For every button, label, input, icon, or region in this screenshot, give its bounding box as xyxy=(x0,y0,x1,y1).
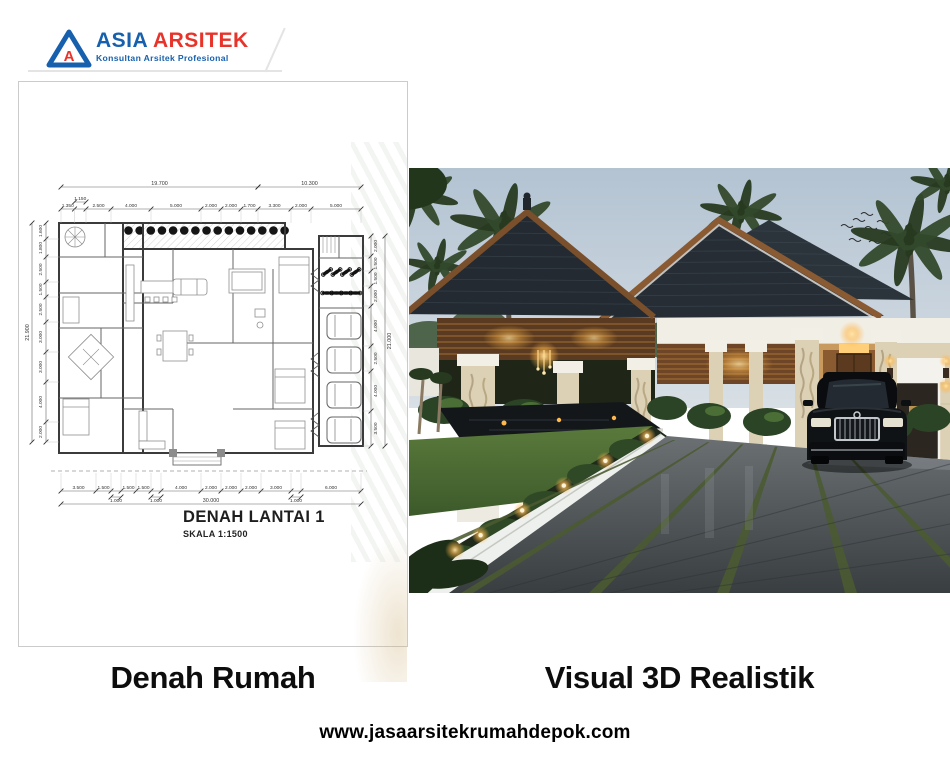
furniture xyxy=(63,227,335,449)
brand-tagline: Konsultan Arsitek Profesional xyxy=(96,53,249,63)
svg-text:1.500: 1.500 xyxy=(122,485,134,491)
svg-text:2.500: 2.500 xyxy=(92,203,104,209)
svg-text:2.000: 2.000 xyxy=(245,485,257,491)
svg-text:2.000: 2.000 xyxy=(38,426,44,438)
svg-text:2.500: 2.500 xyxy=(38,303,44,315)
svg-text:2.500: 2.500 xyxy=(38,263,44,275)
svg-text:30.000: 30.000 xyxy=(203,498,220,504)
interior-walls xyxy=(59,223,363,453)
caption-floorplan: Denah Rumah xyxy=(18,660,408,696)
svg-text:4.000: 4.000 xyxy=(125,203,137,209)
svg-text:2.000: 2.000 xyxy=(373,240,379,252)
porch-chandelier-glow xyxy=(839,321,865,347)
gazebo-finial xyxy=(523,198,531,210)
svg-text:1.700: 1.700 xyxy=(243,203,255,209)
svg-text:10.300: 10.300 xyxy=(301,181,318,187)
svg-text:3.000: 3.000 xyxy=(38,361,44,373)
svg-text:3.500: 3.500 xyxy=(373,422,379,434)
svg-text:2.000: 2.000 xyxy=(295,203,307,209)
svg-text:4.000: 4.000 xyxy=(175,485,187,491)
svg-text:1.000: 1.000 xyxy=(290,498,302,504)
svg-text:3.000: 3.000 xyxy=(270,485,282,491)
svg-text:1.800: 1.800 xyxy=(38,242,44,254)
svg-text:1.000: 1.000 xyxy=(150,498,162,504)
svg-text:2.000: 2.000 xyxy=(225,203,237,209)
website-url: www.jasaarsitekrumahdepok.com xyxy=(0,722,950,744)
svg-text:1.500: 1.500 xyxy=(373,257,379,269)
luxury-car xyxy=(802,372,912,473)
plan-scale-label: SKALA 1:1500 xyxy=(183,529,248,539)
svg-text:19.700: 19.700 xyxy=(151,181,168,187)
svg-text:3.300: 3.300 xyxy=(268,203,280,209)
svg-text:3.500: 3.500 xyxy=(72,485,84,491)
brand-name-primary: ASIA xyxy=(96,29,147,52)
svg-text:1.000: 1.000 xyxy=(110,498,122,504)
svg-text:1.150: 1.150 xyxy=(74,196,86,202)
svg-text:2.500: 2.500 xyxy=(373,352,379,364)
svg-text:21.000: 21.000 xyxy=(387,333,393,350)
svg-text:4.000: 4.000 xyxy=(38,396,44,408)
garage-cars xyxy=(327,313,361,443)
window-frame xyxy=(889,358,945,382)
svg-text:5.000: 5.000 xyxy=(330,203,342,209)
svg-text:4.000: 4.000 xyxy=(373,385,379,397)
svg-text:1.600: 1.600 xyxy=(38,225,44,237)
logo-divider-line xyxy=(28,70,282,72)
svg-text:6.000: 6.000 xyxy=(325,485,337,491)
floorplan-sheet: 19.70010.3001.3501.1502.5004.0005.0002.0… xyxy=(18,81,408,647)
wood-slat-wall xyxy=(657,344,807,384)
pergola-tree-row xyxy=(124,226,289,235)
entry-porch xyxy=(169,449,225,465)
caption-3d-render: Visual 3D Realistik xyxy=(409,660,950,696)
brand-wordmark: ASIA ARSITEK Konsultan Arsitek Profesion… xyxy=(96,30,249,63)
svg-text:1.500: 1.500 xyxy=(137,485,149,491)
svg-text:5.000: 5.000 xyxy=(170,203,182,209)
svg-text:1.500: 1.500 xyxy=(38,283,44,295)
svg-text:4.000: 4.000 xyxy=(373,320,379,332)
svg-text:3.000: 3.000 xyxy=(38,331,44,343)
svg-text:2.000: 2.000 xyxy=(205,203,217,209)
svg-text:2.000: 2.000 xyxy=(225,485,237,491)
plan-title: DENAH LANTAI 1 xyxy=(183,508,325,527)
logo-divider-slash xyxy=(264,28,285,73)
render-photo xyxy=(409,168,950,593)
brand-logo: A ASIA ARSITEK Konsultan Arsitek Profesi… xyxy=(34,22,294,78)
svg-text:1.500: 1.500 xyxy=(373,272,379,284)
svg-text:21.900: 21.900 xyxy=(25,324,31,341)
garage-motorbikes xyxy=(321,267,362,295)
brand-triangle-icon: A xyxy=(46,28,92,70)
svg-text:1.500: 1.500 xyxy=(97,485,109,491)
brand-monogram: A xyxy=(64,48,75,65)
brand-name-secondary: ARSITEK xyxy=(153,29,249,52)
svg-text:2.000: 2.000 xyxy=(373,290,379,302)
svg-text:2.000: 2.000 xyxy=(205,485,217,491)
